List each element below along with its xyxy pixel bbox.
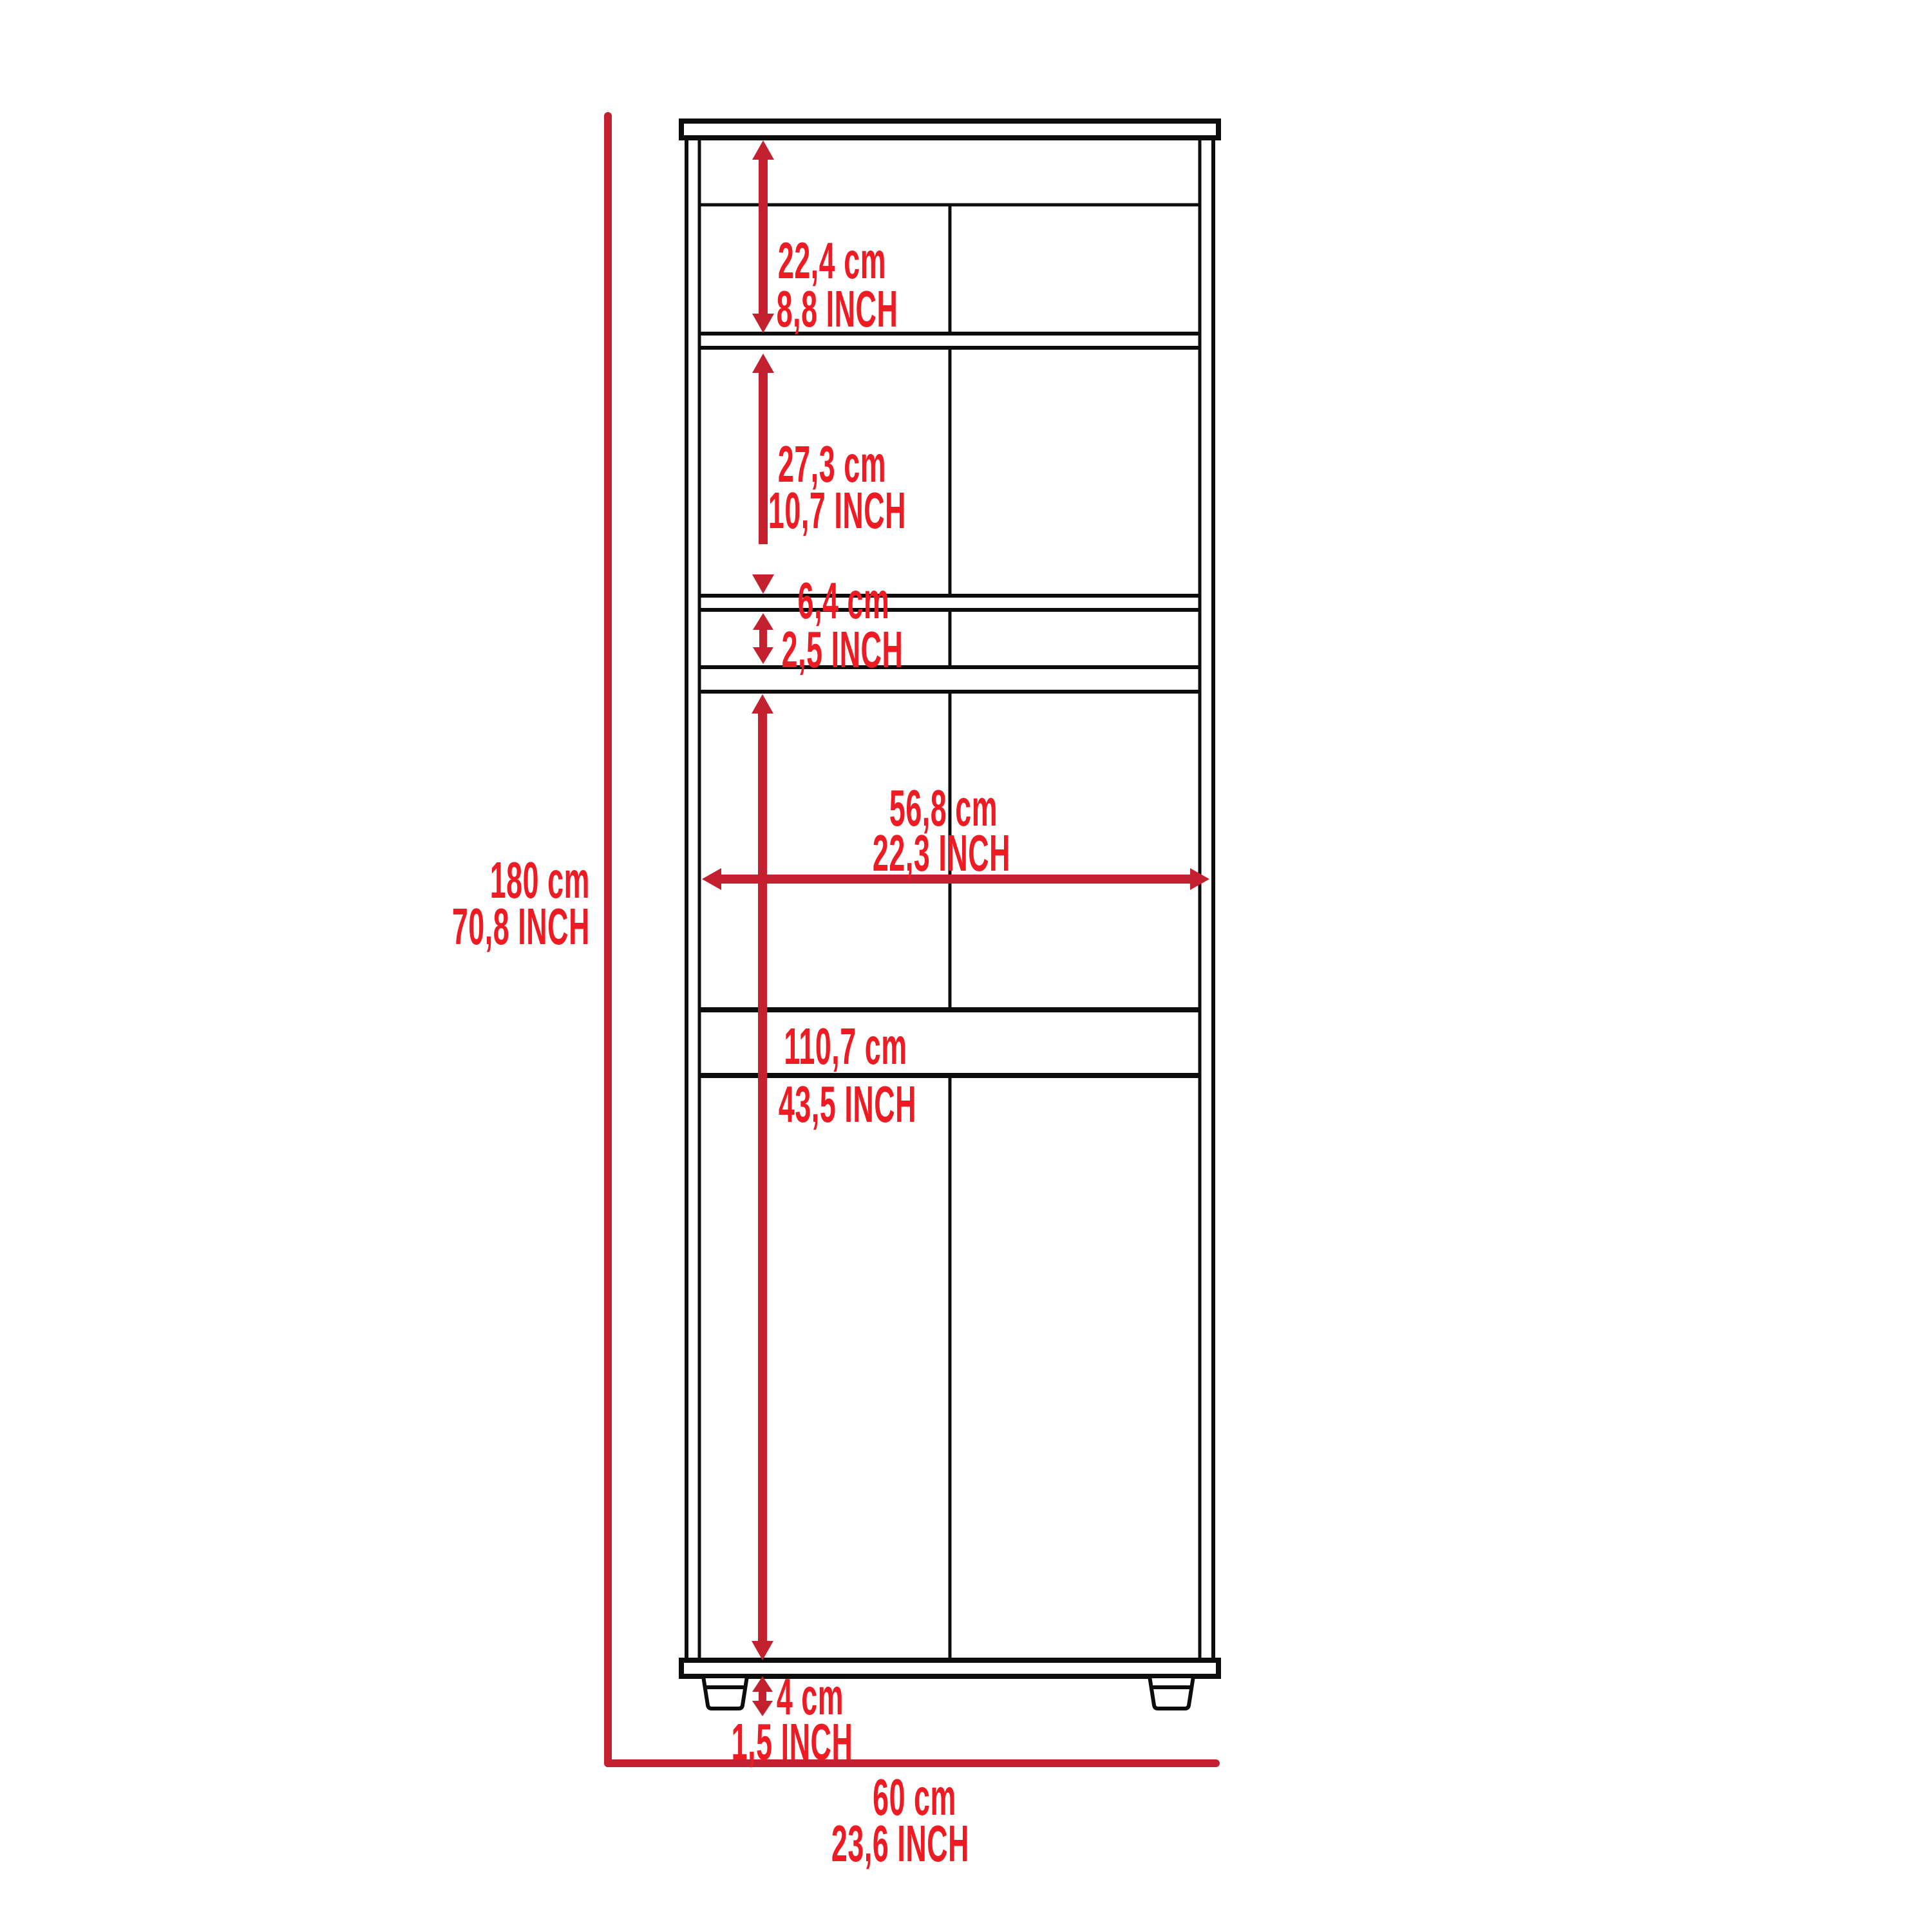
lower-section-cm-label: 110,7 cm [784,1017,907,1075]
lower-section-inch-label: 43,5 INCH [779,1075,916,1133]
dim-arrow-lower-section [752,694,773,1660]
dimension-labels: 22,4 cm 8,8 INCH 27,3 cm 10,7 INCH 6,4 c… [452,231,1010,1872]
dim-arrow-foot-height [752,1676,773,1716]
upper-door-inch-label: 10,7 INCH [768,481,906,539]
dim-arrow-small-shelf [753,613,773,664]
top-section-inch-label: 8,8 INCH [777,279,898,337]
foot-height-inch-label: 1,5 INCH [732,1712,853,1770]
right-foot [1150,1676,1193,1709]
dim-arrow-top-section [752,140,774,333]
furniture-dimension-diagram: 22,4 cm 8,8 INCH 27,3 cm 10,7 INCH 6,4 c… [0,0,1932,1932]
cabinet-top-panel [681,121,1218,138]
interior-width-inch-label: 22,3 INCH [873,824,1010,882]
overall-width-inch-label: 23,6 INCH [831,1814,969,1872]
dim-arrow-upper-door [752,354,774,594]
left-foot [703,1676,747,1709]
cabinet-base-panel [681,1660,1218,1676]
cabinet-dimension-drawing: 22,4 cm 8,8 INCH 27,3 cm 10,7 INCH 6,4 c… [0,0,1932,1932]
overall-height-inch-label: 70,8 INCH [452,897,590,955]
small-shelf-inch-label: 2,5 INCH [782,620,904,678]
